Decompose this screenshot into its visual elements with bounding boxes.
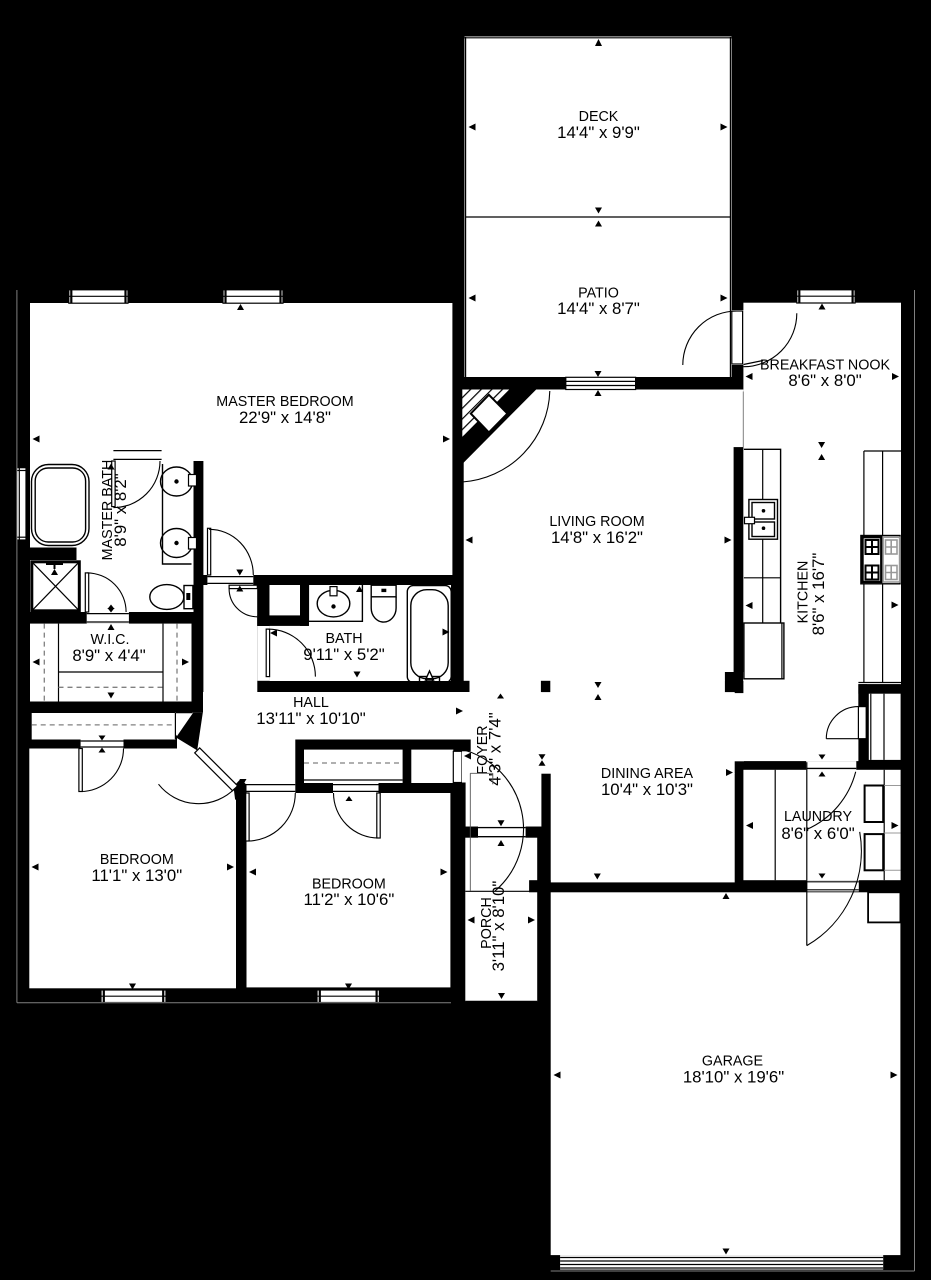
- svg-text:14'4" x 8'7": 14'4" x 8'7": [557, 299, 640, 318]
- svg-text:8'6" x 16'7": 8'6" x 16'7": [809, 553, 828, 636]
- svg-text:8'9" x 4'4": 8'9" x 4'4": [72, 646, 145, 665]
- svg-text:8'6" x 8'0": 8'6" x 8'0": [788, 371, 861, 390]
- svg-text:3'11" x 8'10": 3'11" x 8'10": [489, 881, 508, 972]
- svg-text:4'3" x 7'4": 4'3" x 7'4": [486, 712, 505, 785]
- svg-text:LAUNDRY: LAUNDRY: [784, 809, 853, 825]
- svg-text:8'9" x 8'2": 8'9" x 8'2": [111, 473, 130, 546]
- svg-text:9'11" x 5'2": 9'11" x 5'2": [303, 645, 384, 664]
- svg-text:22'9" x 14'8": 22'9" x 14'8": [239, 408, 331, 427]
- svg-text:10'4" x 10'3": 10'4" x 10'3": [601, 780, 693, 799]
- svg-text:18'10" x 19'6": 18'10" x 19'6": [683, 1068, 784, 1087]
- svg-text:11'2" x 10'6": 11'2" x 10'6": [304, 890, 395, 909]
- svg-text:14'4" x 9'9": 14'4" x 9'9": [557, 123, 640, 142]
- svg-text:13'11" x 10'10": 13'11" x 10'10": [256, 709, 365, 728]
- svg-text:8'6" x 6'0": 8'6" x 6'0": [781, 824, 854, 843]
- svg-text:11'1" x 13'0": 11'1" x 13'0": [91, 866, 182, 885]
- svg-text:14'8" x 16'2": 14'8" x 16'2": [551, 528, 643, 547]
